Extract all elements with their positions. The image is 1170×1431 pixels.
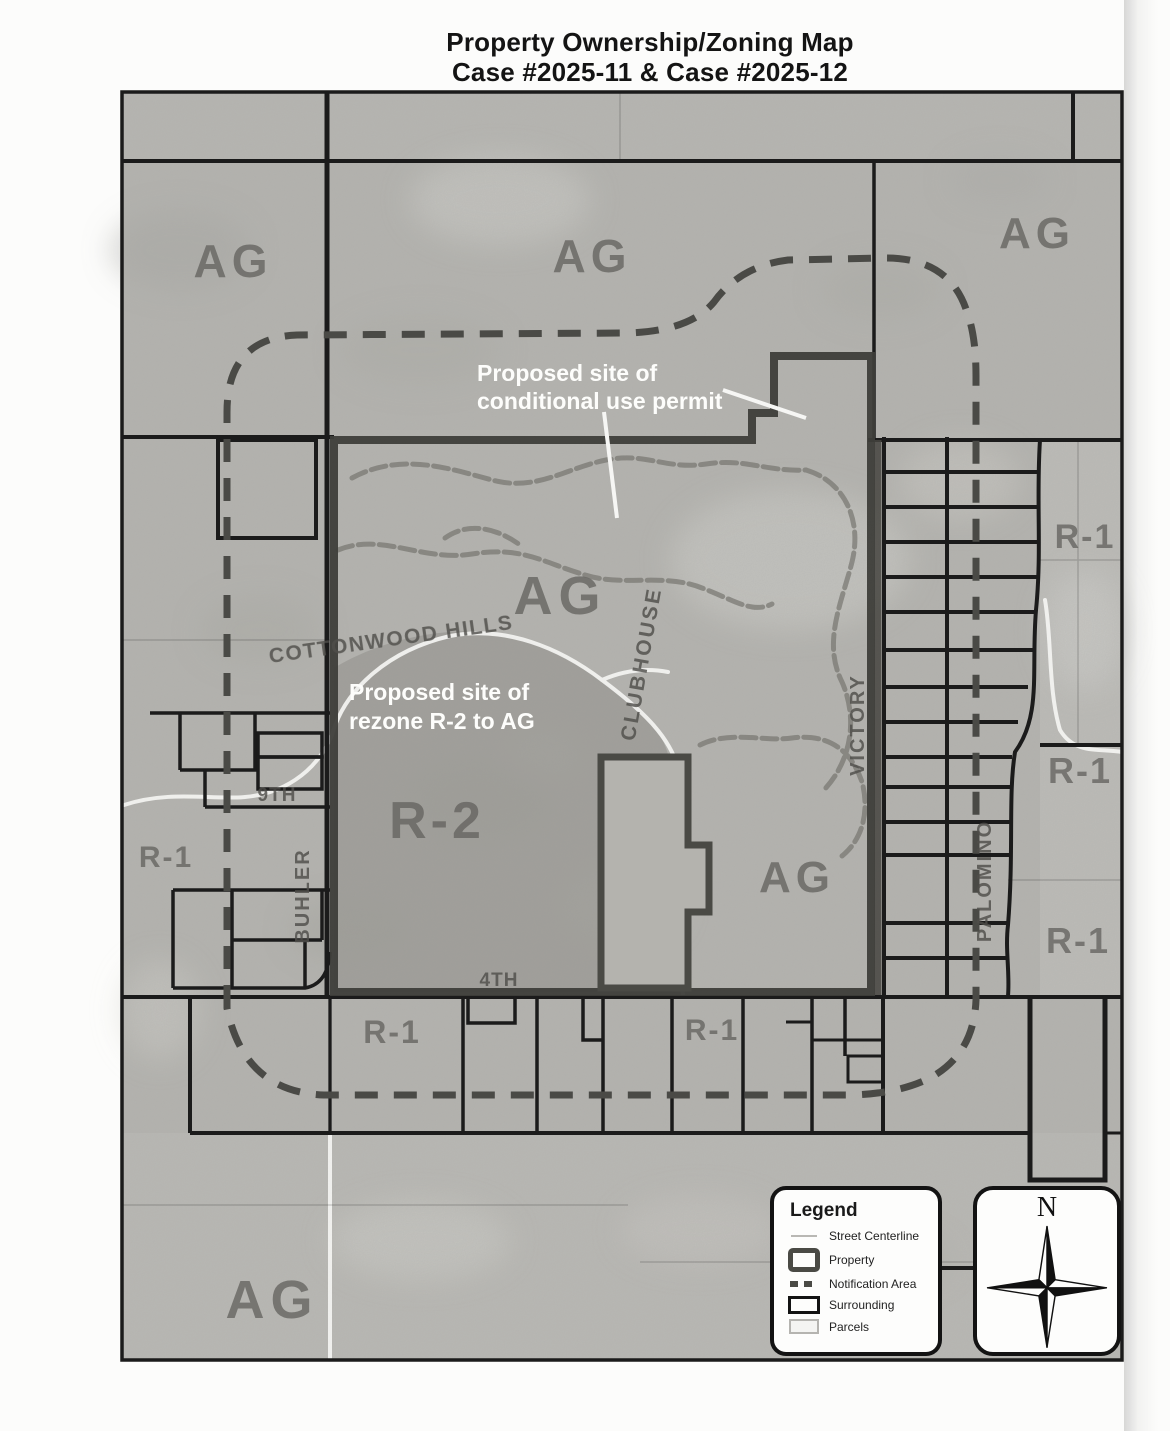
zone-label-r1-east-upper: R-1 [1055,518,1116,556]
legend-label-street-centerline: Street Centerline [829,1229,919,1243]
notification-area-symbol [788,1281,820,1287]
zone-label-r1-west: R-1 [139,841,193,874]
compass-rose: N [973,1186,1121,1356]
parcels-symbol [788,1319,820,1334]
compass-north-label: N [977,1193,1117,1223]
zone-label-r1-south-mid: R-1 [685,1014,739,1047]
zone-label-ag-southwest: AG [226,1270,319,1330]
legend-label-notification-area: Notification Area [829,1277,916,1291]
zone-label-r2: R-2 [389,792,485,850]
legend-row-property: Property [788,1248,928,1272]
legend-row-parcels: Parcels [788,1319,928,1334]
annotation-cup-line1: Proposed site of [477,360,658,386]
scanned-zoning-map-page: Property Ownership/Zoning Map Case #2025… [0,0,1170,1431]
annotation-cup-line2: conditional use permit [477,388,723,414]
street-label-victory: VICTORY [847,674,869,776]
zone-label-r1-east-mid: R-1 [1048,750,1112,791]
legend-label-property: Property [829,1253,874,1267]
legend-row-notification-area: Notification Area [788,1277,928,1291]
surrounding-symbol [788,1296,820,1314]
zone-label-r1-south-left: R-1 [363,1014,421,1050]
legend-row-street-centerline: Street Centerline [788,1229,928,1243]
street-label-buhler: BUHLER [292,848,314,943]
annotation-rezone-line2: rezone R-2 to AG [349,708,535,734]
legend-label-surrounding: Surrounding [829,1298,894,1312]
zone-label-r1-east-lower: R-1 [1046,920,1110,961]
property-symbol [788,1248,820,1272]
legend-row-surrounding: Surrounding [788,1296,928,1314]
street-centerline-symbol [788,1235,820,1237]
legend: Legend Street Centerline Property Notifi… [770,1186,942,1356]
street-label-4th: 4TH [480,970,519,991]
street-label-palomino: PALOMINO [974,820,996,942]
compass-star-icon [982,1223,1112,1349]
scan-page-edge [1124,0,1170,1431]
zone-label-ag-northwest: AG [194,235,273,287]
legend-title: Legend [790,1200,928,1222]
zone-label-ag-inset: AG [759,853,835,902]
legend-label-parcels: Parcels [829,1320,869,1334]
zone-label-ag-north: AG [553,230,632,282]
annotation-rezone-line1: Proposed site of [349,679,530,705]
street-label-9th: 9TH [258,785,297,806]
zone-label-ag-central: AG [514,566,607,626]
zone-label-ag-northeast: AG [999,209,1075,258]
